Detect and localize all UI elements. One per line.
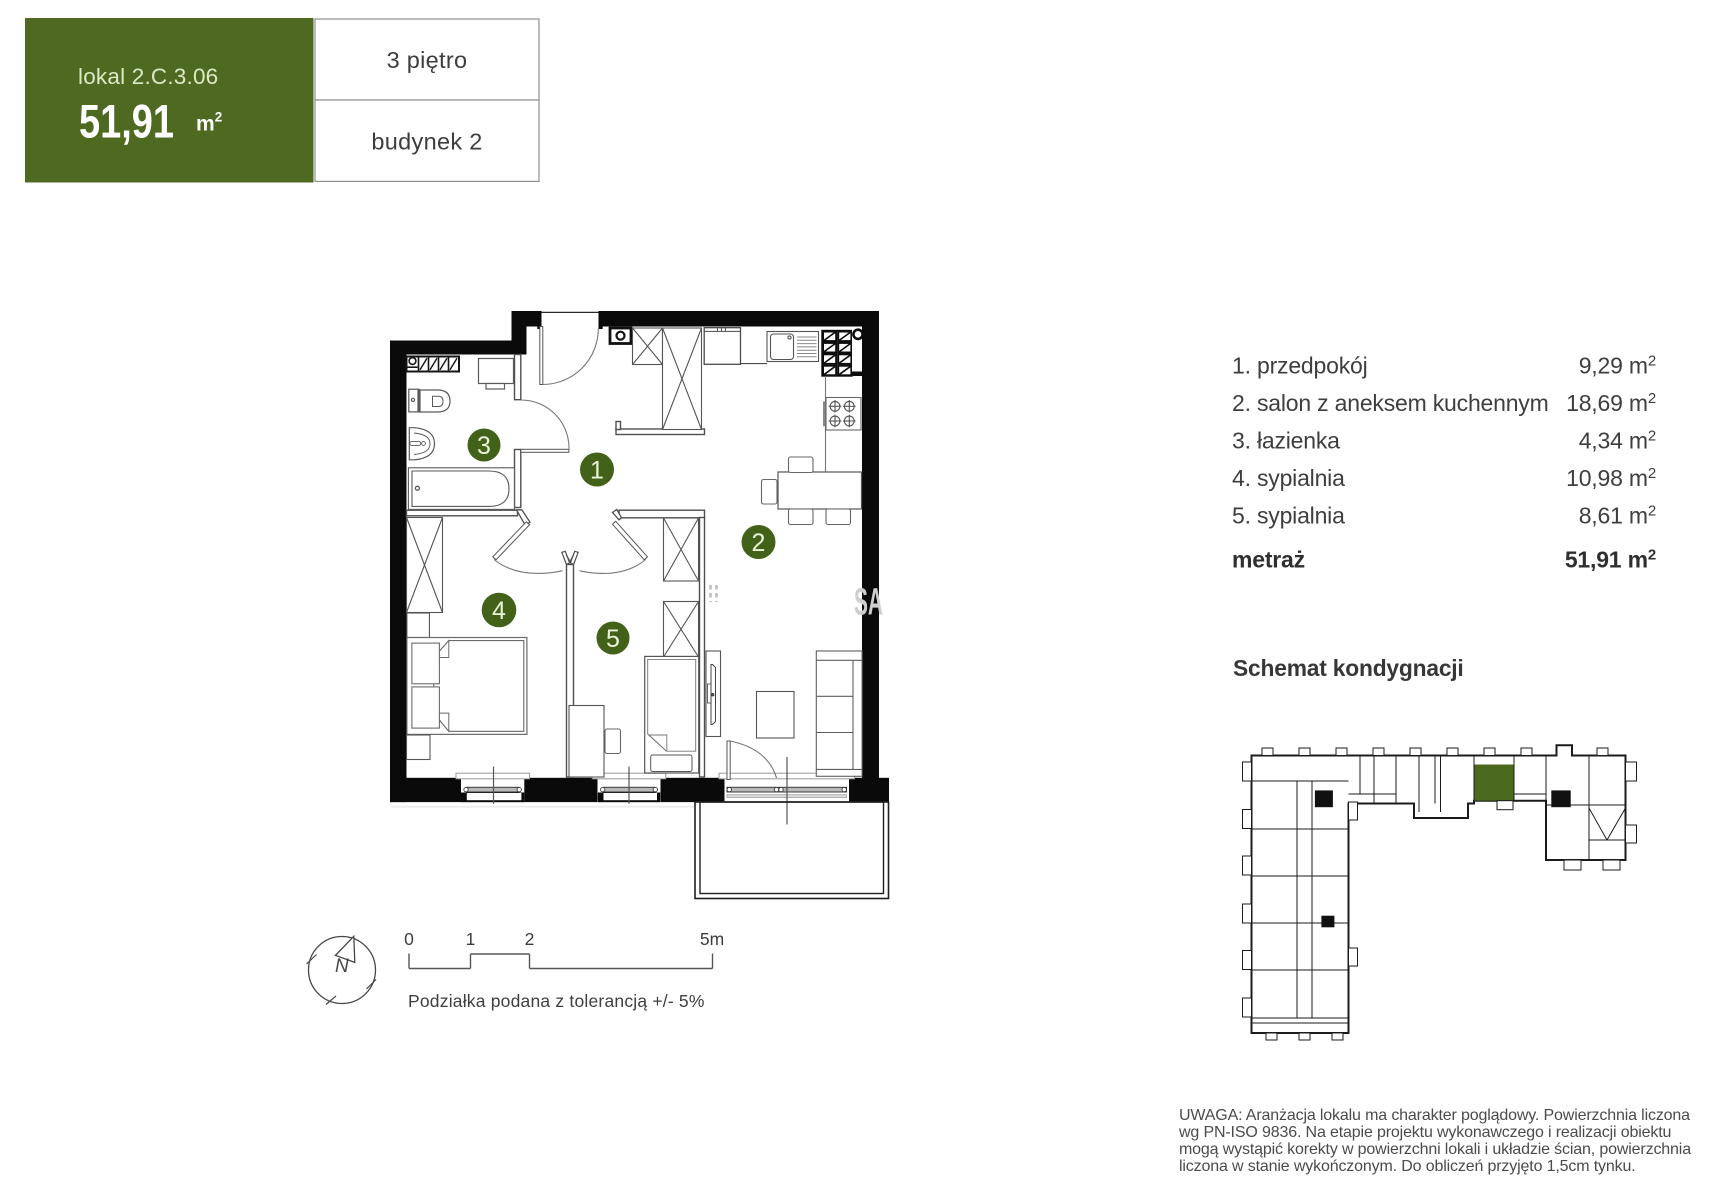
svg-text:4,34 m2: 4,34 m2 [1579, 428, 1656, 454]
svg-text:3 piętro: 3 piętro [387, 47, 468, 73]
svg-text:1. przedpokój: 1. przedpokój [1232, 353, 1368, 379]
svg-text:5. sypialnia: 5. sypialnia [1232, 503, 1345, 529]
svg-text:lokal 2.C.3.06: lokal 2.C.3.06 [78, 64, 218, 89]
svg-text:2. salon z aneksem kuchennym: 2. salon z aneksem kuchennym [1232, 390, 1549, 416]
svg-text:SA: SA [854, 582, 883, 624]
svg-text:Schemat kondygnacji: Schemat kondygnacji [1233, 655, 1464, 681]
svg-text:2: 2 [525, 929, 535, 949]
svg-text:mogą wystąpić korekty w powier: mogą wystąpić korekty w powierzchni loka… [1179, 1141, 1691, 1158]
svg-text:4. sypialnia: 4. sypialnia [1232, 465, 1345, 491]
svg-text:1: 1 [466, 929, 476, 949]
svg-text:8,61 m2: 8,61 m2 [1579, 503, 1656, 529]
svg-text:10,98 m2: 10,98 m2 [1566, 465, 1656, 491]
svg-text:18,69 m2: 18,69 m2 [1566, 390, 1656, 416]
svg-text:51,91 m2: 51,91 m2 [1565, 547, 1656, 573]
svg-text:3. łazienka: 3. łazienka [1232, 428, 1340, 454]
svg-text:liczona w stanie wykończonym.: liczona w stanie wykończonym. Do oblicze… [1179, 1158, 1636, 1175]
svg-text:5m: 5m [700, 929, 724, 949]
svg-text:wg PN-ISO 9836. Na etapie proj: wg PN-ISO 9836. Na etapie projektu wykon… [1178, 1124, 1671, 1141]
svg-text:UWAGA: Aranżacja lokalu ma cha: UWAGA: Aranżacja lokalu ma charakter pog… [1179, 1107, 1690, 1124]
svg-text:0: 0 [404, 929, 414, 949]
svg-text:metraż: metraż [1232, 547, 1305, 573]
svg-text:3: 3 [477, 432, 491, 460]
svg-text:9,29 m2: 9,29 m2 [1579, 353, 1656, 379]
svg-text:5: 5 [606, 625, 620, 653]
svg-text:51,91: 51,91 [79, 95, 174, 148]
svg-text:1: 1 [590, 457, 604, 485]
svg-text:N: N [335, 956, 349, 977]
svg-text:2: 2 [752, 529, 766, 557]
svg-text:4: 4 [492, 597, 506, 625]
svg-text:Podziałka podana z tolerancją: Podziałka podana z tolerancją +/- 5% [408, 991, 705, 1011]
svg-text:budynek 2: budynek 2 [371, 129, 482, 155]
